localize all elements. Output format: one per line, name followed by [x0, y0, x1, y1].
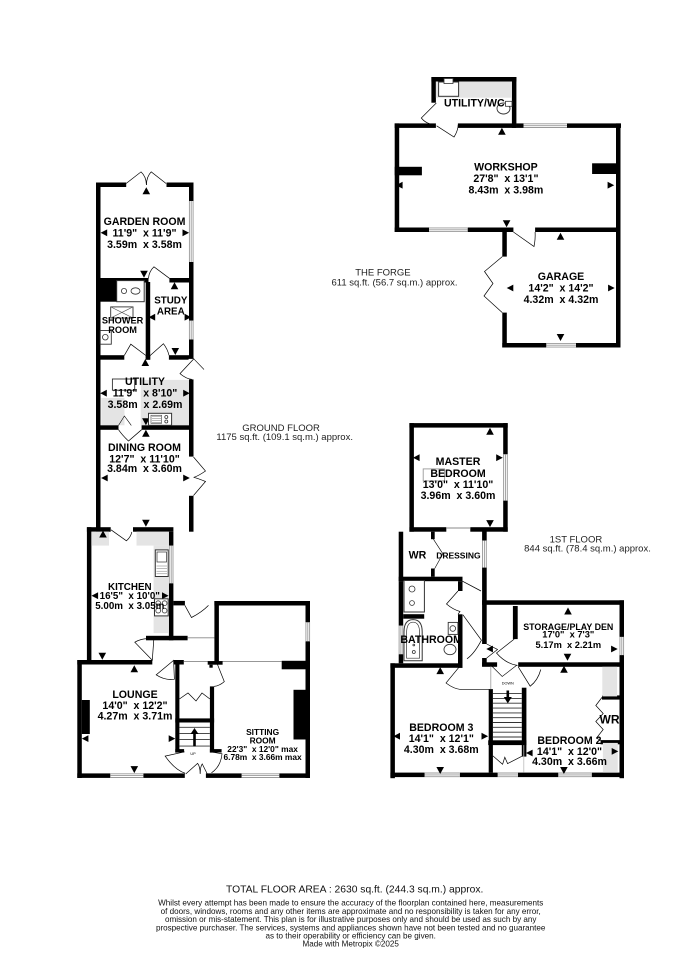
svg-text:UTILITY: UTILITY	[125, 376, 165, 388]
svg-text:TOTAL FLOOR AREA : 2630 sq.ft.: TOTAL FLOOR AREA : 2630 sq.ft. (244.3 sq…	[226, 884, 483, 895]
svg-text:WR: WR	[600, 713, 620, 727]
svg-text:UP: UP	[190, 752, 196, 756]
svg-text:WORKSHOP: WORKSHOP	[474, 162, 538, 174]
svg-text:27'8" x 13'1": 27'8" x 13'1"	[473, 173, 538, 185]
svg-text:STUDY: STUDY	[154, 296, 188, 307]
svg-text:11'9" x 11'9": 11'9" x 11'9"	[113, 228, 177, 240]
svg-text:611 sq.ft. (56.7 sq.m.) approx: 611 sq.ft. (56.7 sq.m.) approx.	[331, 277, 457, 288]
svg-text:11'9" x 8'10": 11'9" x 8'10"	[113, 388, 178, 400]
svg-text:AREA: AREA	[157, 307, 185, 318]
svg-text:14'2" x 14'2": 14'2" x 14'2"	[528, 283, 593, 295]
svg-text:3.58m x 2.69m: 3.58m x 2.69m	[108, 399, 183, 411]
svg-text:MASTER: MASTER	[436, 456, 481, 468]
svg-text:WR: WR	[409, 550, 427, 562]
svg-text:5.00m x 3.05m: 5.00m x 3.05m	[95, 601, 164, 612]
svg-text:DOWN: DOWN	[502, 682, 514, 686]
svg-text:3.96m x 3.60m: 3.96m x 3.60m	[421, 490, 496, 502]
svg-text:8.43m x 3.98m: 8.43m x 3.98m	[468, 185, 543, 197]
svg-text:844 sq.ft. (78.4 sq.m.) approx: 844 sq.ft. (78.4 sq.m.) approx.	[524, 543, 651, 554]
svg-text:3.59m x 3.58m: 3.59m x 3.58m	[107, 239, 182, 251]
svg-text:4.32m x 4.32m: 4.32m x 4.32m	[524, 294, 599, 306]
svg-text:DRESSING: DRESSING	[436, 551, 481, 561]
svg-text:4.30m x 3.68m: 4.30m x 3.68m	[404, 744, 479, 756]
svg-text:4.27m x 3.71m: 4.27m x 3.71m	[98, 711, 173, 723]
svg-text:UTILITY/WC: UTILITY/WC	[444, 98, 505, 110]
svg-text:DINING ROOM: DINING ROOM	[108, 442, 181, 454]
svg-text:5.17m x 2.21m: 5.17m x 2.21m	[535, 640, 601, 650]
svg-text:ROOM: ROOM	[108, 325, 137, 335]
svg-text:GARAGE: GARAGE	[538, 271, 585, 283]
svg-text:1175 sq.ft. (109.1 sq.m.) appr: 1175 sq.ft. (109.1 sq.m.) approx.	[216, 432, 353, 443]
svg-text:GARDEN ROOM: GARDEN ROOM	[104, 216, 186, 228]
svg-text:Made with Metropix ©2025: Made with Metropix ©2025	[303, 940, 400, 949]
svg-text:6.78m x 3.66m max: 6.78m x 3.66m max	[223, 752, 302, 762]
svg-text:SHOWER: SHOWER	[102, 316, 144, 326]
svg-text:3.84m x 3.60m: 3.84m x 3.60m	[107, 463, 182, 475]
svg-text:17'0" x 7'3": 17'0" x 7'3"	[542, 630, 594, 640]
svg-text:4.30m x 3.66m: 4.30m x 3.66m	[532, 756, 607, 768]
svg-text:BATHROOM: BATHROOM	[400, 634, 462, 646]
